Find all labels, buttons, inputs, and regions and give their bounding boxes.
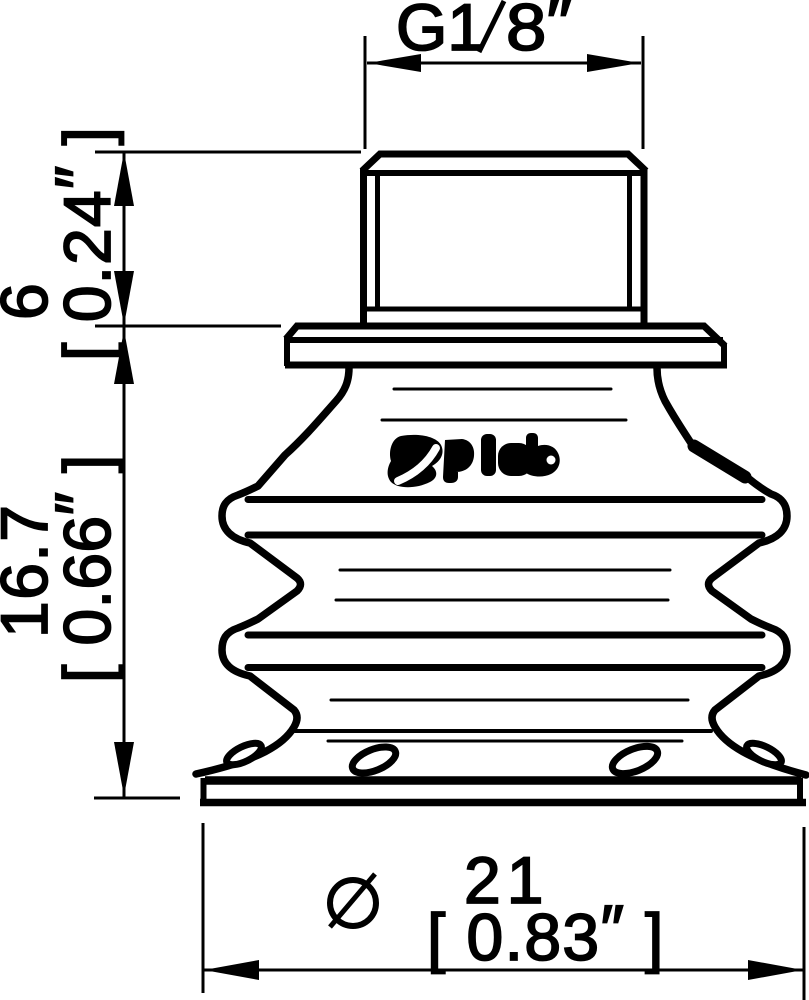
svg-text:[ 0.66″ ]: [ 0.66″ ]	[41, 454, 124, 683]
svg-text:[ 0.83″ ]: [ 0.83″ ]	[427, 891, 665, 974]
svg-text:G1: G1	[396, 0, 484, 64]
svg-text:8″: 8″	[506, 0, 572, 64]
svg-text:[ 0.24″ ]: [ 0.24″ ]	[41, 126, 124, 361]
